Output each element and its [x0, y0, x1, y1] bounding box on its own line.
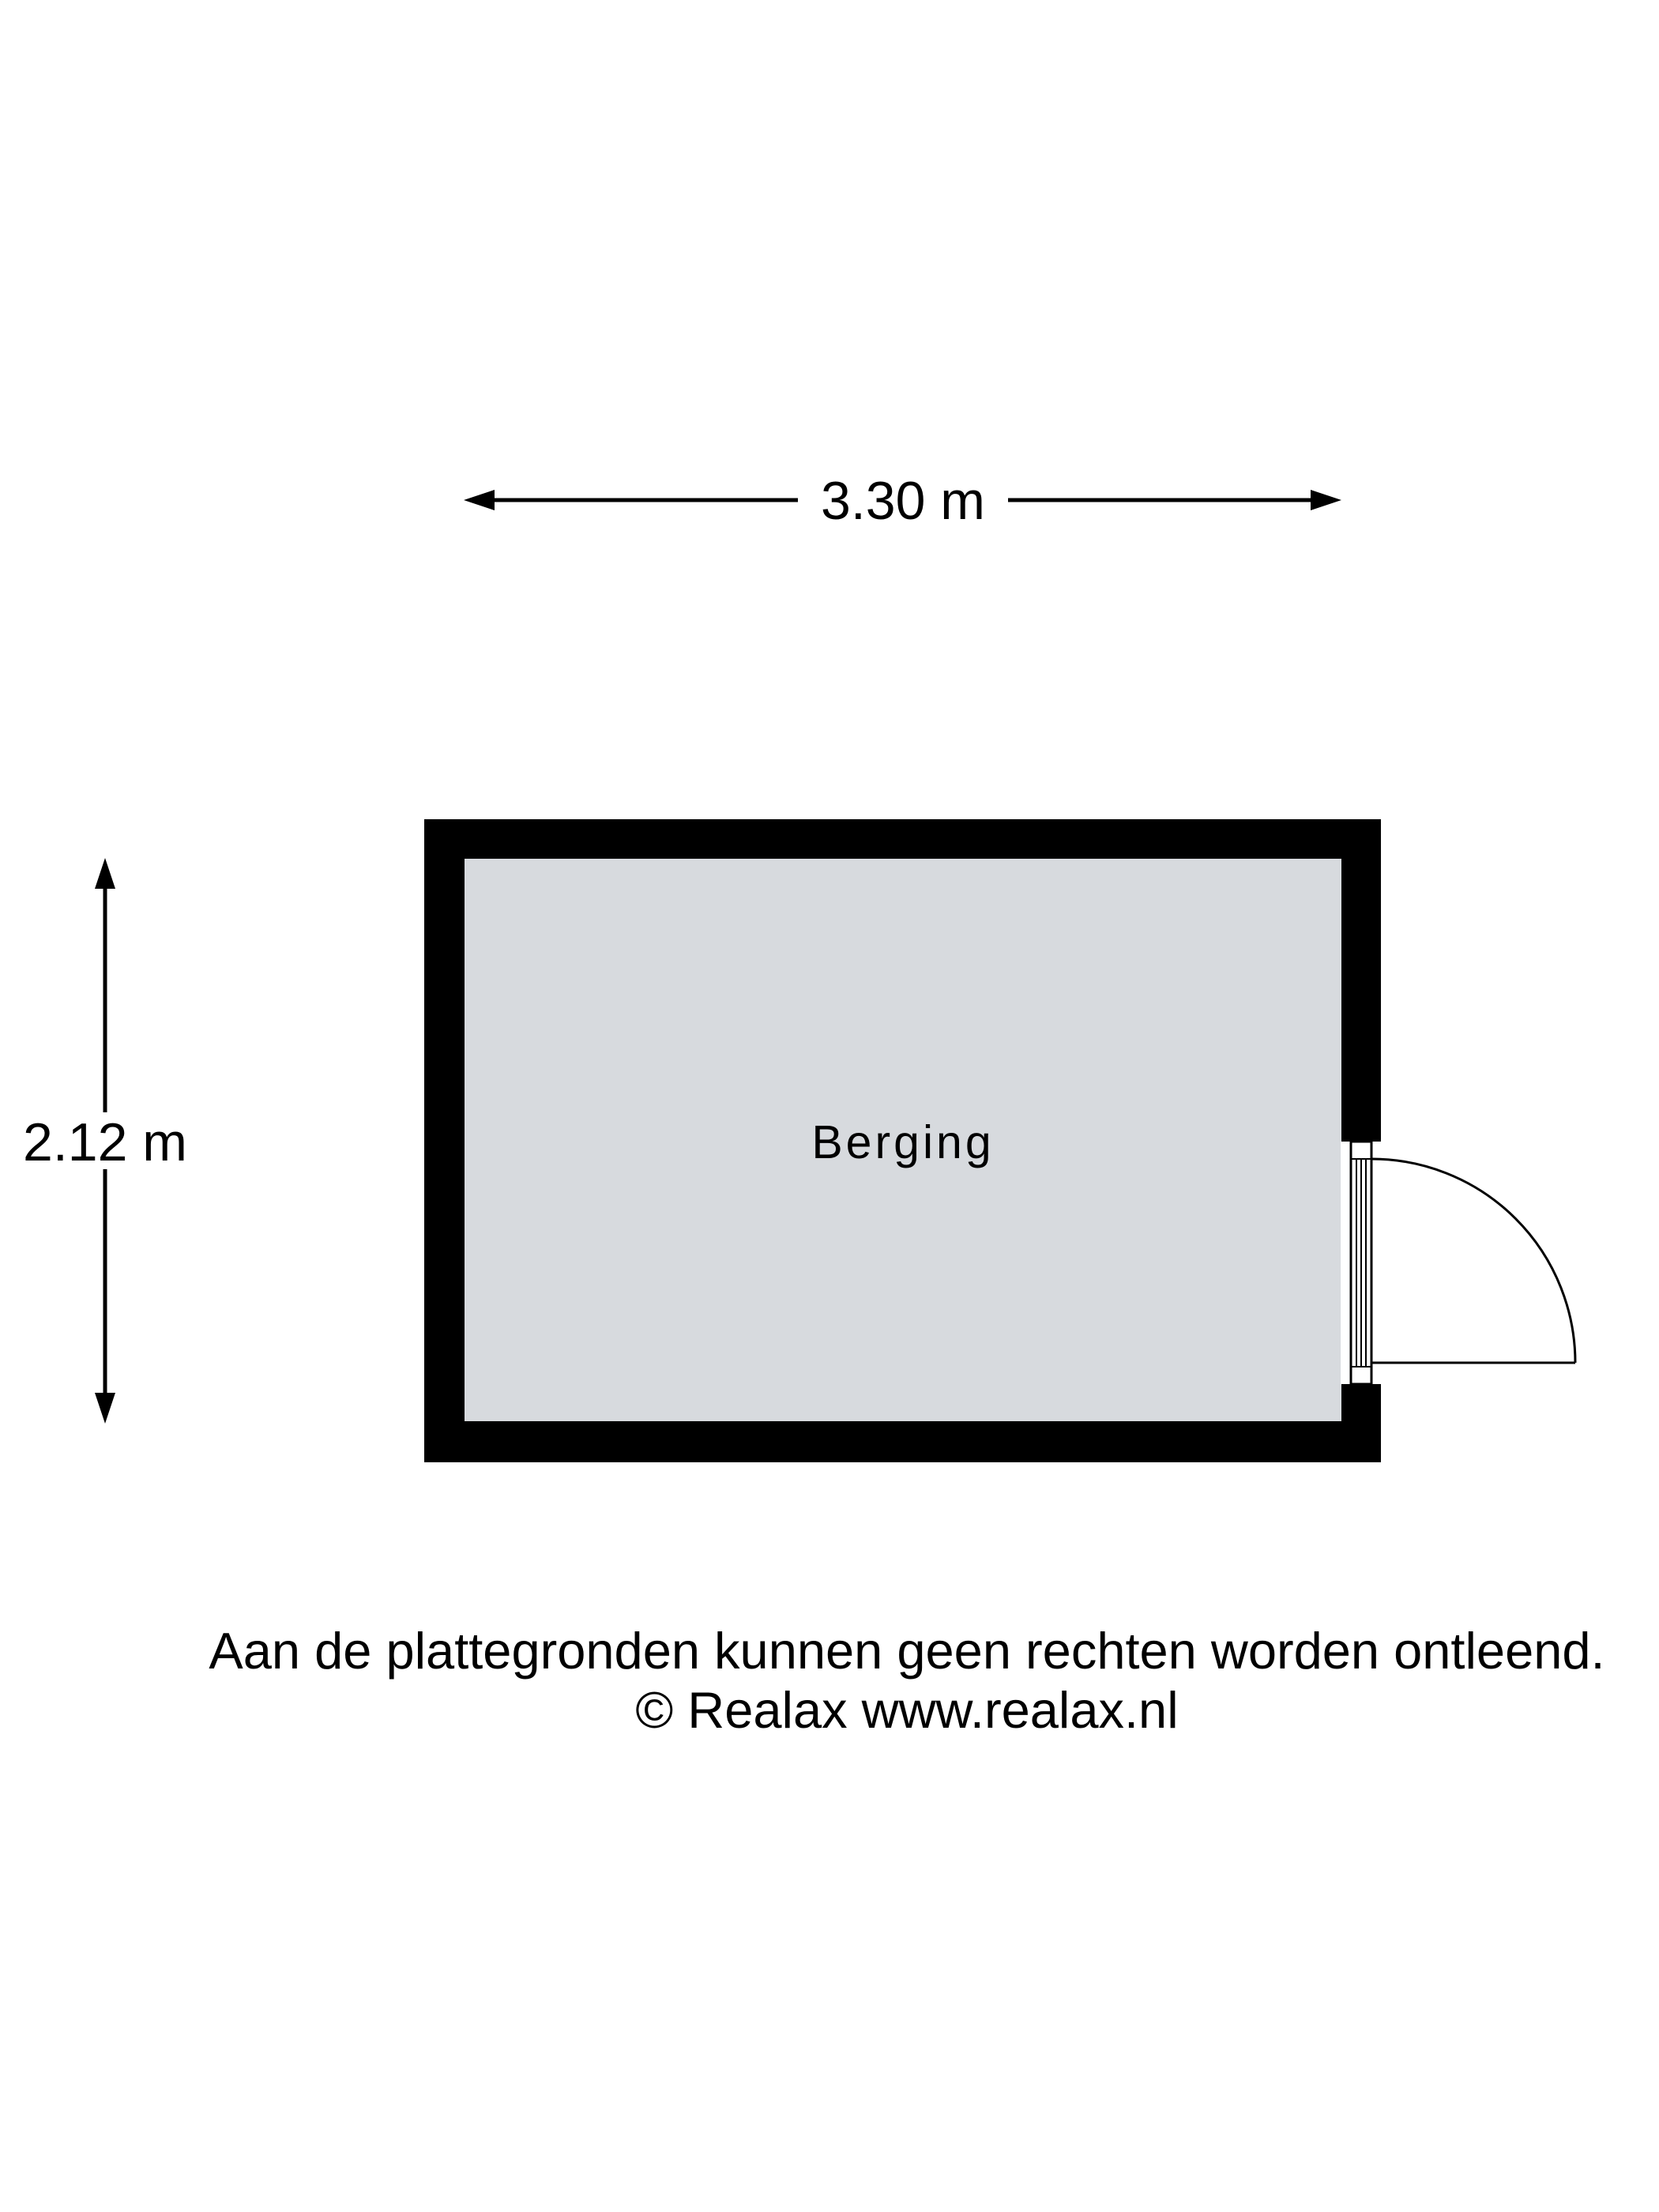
- door: [1341, 1142, 1575, 1384]
- door-opening: [1341, 1142, 1384, 1384]
- width-dimension-label: 3.30 m: [821, 471, 985, 531]
- room-name-label: Berging: [811, 1116, 994, 1168]
- floor-plan-page: 3.30 m 2.12 m Berging: [0, 0, 1659, 2212]
- arrow-right-icon: [1311, 490, 1341, 510]
- arrow-up-icon: [95, 858, 115, 889]
- arrow-left-icon: [464, 490, 495, 510]
- height-dimension: 2.12 m: [23, 858, 187, 1424]
- floor-plan-canvas: 3.30 m 2.12 m Berging: [0, 0, 1659, 2212]
- door-swing-arc: [1371, 1159, 1575, 1363]
- disclaimer-text: Aan de plattegronden kunnen geen rechten…: [209, 1622, 1604, 1680]
- copyright-text: © Realax www.realax.nl: [635, 1681, 1178, 1739]
- height-dimension-label: 2.12 m: [23, 1112, 187, 1172]
- footer: Aan de plattegronden kunnen geen rechten…: [209, 1622, 1604, 1739]
- width-dimension: 3.30 m: [464, 471, 1341, 531]
- arrow-down-icon: [95, 1393, 115, 1424]
- room-berging: Berging: [424, 819, 1381, 1462]
